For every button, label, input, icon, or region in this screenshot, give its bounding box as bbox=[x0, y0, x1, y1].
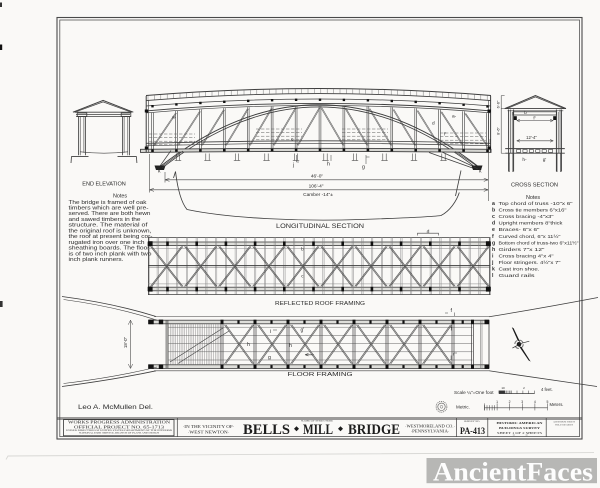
svg-text:BRIDGE: BRIDGE bbox=[348, 422, 400, 438]
svg-text:PA-413: PA-413 bbox=[460, 426, 485, 437]
svg-text:timbers which are well pre-: timbers which are well pre- bbox=[69, 206, 149, 212]
svg-text:Scale ¼"=One foot: Scale ¼"=One foot bbox=[454, 390, 494, 395]
svg-text:Meters.: Meters. bbox=[550, 402, 564, 407]
svg-text:the original roof is unknown,: the original roof is unknown, bbox=[69, 228, 152, 234]
svg-text:END ELEVATION: END ELEVATION bbox=[82, 182, 126, 188]
svg-text:Cross bracing 4"x 4": Cross bracing 4"x 4" bbox=[499, 253, 555, 258]
svg-text:2: 2 bbox=[509, 400, 511, 404]
svg-text:g: g bbox=[362, 165, 365, 171]
svg-text:BUILDINGS SURVEY: BUILDINGS SURVEY bbox=[499, 426, 541, 430]
svg-text:OFFICIAL PROJECT NO. 65-1713: OFFICIAL PROJECT NO. 65-1713 bbox=[74, 424, 164, 429]
svg-text:CROSS SECTION: CROSS SECTION bbox=[511, 183, 558, 189]
svg-text:is of two inch plank with two: is of two inch plank with two bbox=[69, 251, 152, 257]
svg-text:46'-0": 46'-0" bbox=[311, 174, 324, 180]
svg-text:REFLECTED ROOF FRAMING: REFLECTED ROOF FRAMING bbox=[275, 301, 366, 307]
svg-text:Curved chord, 6"x 11½": Curved chord, 6"x 11½" bbox=[499, 233, 561, 239]
svg-text:b: b bbox=[492, 208, 495, 214]
svg-text:1: 1 bbox=[496, 400, 498, 404]
svg-text:Metric.: Metric. bbox=[456, 405, 470, 410]
svg-text:f: f bbox=[492, 234, 494, 240]
svg-text:BELLS: BELLS bbox=[243, 422, 290, 438]
svg-text:Notes: Notes bbox=[526, 195, 540, 201]
svg-text:Braces- 6"x 6": Braces- 6"x 6" bbox=[499, 227, 540, 232]
svg-text:h: h bbox=[289, 343, 292, 349]
svg-text:Girders 7"x 12": Girders 7"x 12" bbox=[499, 247, 546, 252]
svg-text:SURVEY NO.: SURVEY NO. bbox=[464, 420, 480, 423]
svg-text:d: d bbox=[432, 121, 435, 127]
svg-text:c: c bbox=[492, 214, 495, 220]
svg-text:LONGITUDINAL SECTION: LONGITUDINAL SECTION bbox=[276, 223, 364, 230]
svg-text:6'-6": 6'-6" bbox=[496, 100, 501, 108]
svg-text:d: d bbox=[427, 230, 430, 236]
svg-text:Cross tie members 6"x16": Cross tie members 6"x16" bbox=[499, 208, 567, 213]
svg-text:h-: h- bbox=[522, 157, 527, 163]
svg-text:WORKS PROGRESS ADMINISTRATION: WORKS PROGRESS ADMINISTRATION bbox=[68, 420, 170, 424]
svg-text:structure. The material of: structure. The material of bbox=[69, 223, 149, 229]
svg-text:Notes: Notes bbox=[113, 194, 127, 200]
svg-text:rugated iron over one inch: rugated iron over one inch bbox=[69, 240, 145, 246]
svg-text:The bridge is framed of oak: The bridge is framed of oak bbox=[69, 200, 148, 206]
svg-text:·WESTMORELAND CO.·: ·WESTMORELAND CO.· bbox=[405, 424, 455, 429]
svg-text:served. There are both hewn: served. There are both hewn bbox=[69, 211, 151, 217]
svg-text:i: i bbox=[270, 329, 271, 335]
svg-text:Camber -14"±: Camber -14"± bbox=[303, 192, 333, 198]
svg-text:inch plank runners.: inch plank runners. bbox=[69, 257, 124, 263]
svg-text:SHEET 1 OF 2 SHEETS: SHEET 1 OF 2 SHEETS bbox=[497, 431, 542, 435]
svg-text:a: a bbox=[492, 201, 495, 207]
svg-text:MILL: MILL bbox=[303, 422, 333, 438]
svg-text:Upright members 8"thick: Upright members 8"thick bbox=[499, 221, 564, 226]
svg-text:10: 10 bbox=[501, 386, 505, 390]
svg-text:Cross bracing -4"x3": Cross bracing -4"x3" bbox=[499, 214, 554, 219]
svg-text:g': g' bbox=[543, 157, 547, 163]
svg-text:g': g' bbox=[301, 327, 305, 333]
svg-text:k: k bbox=[492, 267, 495, 273]
svg-text:d: d bbox=[492, 221, 495, 227]
svg-text:Leo A. McMullen Del.: Leo A. McMullen Del. bbox=[78, 404, 153, 411]
svg-text:f': f' bbox=[444, 132, 446, 138]
svg-text:4 feet.: 4 feet. bbox=[541, 387, 553, 392]
svg-text:18'-0": 18'-0" bbox=[123, 336, 128, 348]
svg-text:g: g bbox=[268, 355, 271, 361]
svg-text:12'-4": 12'-4" bbox=[526, 135, 537, 140]
svg-text:Floor stringers. 4½"x 7": Floor stringers. 4½"x 7" bbox=[499, 259, 561, 265]
svg-text:g: g bbox=[492, 240, 495, 246]
svg-text:Bottom chord of truss-two 6"x1: Bottom chord of truss-two 6"x11½" bbox=[499, 239, 579, 245]
svg-text:and sawed timbers in the: and sawed timbers in the bbox=[69, 217, 141, 223]
svg-text:8'-6": 8'-6" bbox=[496, 127, 501, 135]
svg-text:Guard rails: Guard rails bbox=[499, 273, 536, 278]
svg-text:HISTORIC AMERICAN: HISTORIC AMERICAN bbox=[497, 421, 544, 425]
svg-text:AncientFaces: AncientFaces bbox=[433, 458, 593, 487]
svg-text:the roof at present being cor-: the roof at present being cor- bbox=[69, 234, 153, 240]
svg-text:h: h bbox=[327, 162, 330, 168]
svg-text:5: 5 bbox=[546, 400, 548, 404]
svg-text:FLOOR FRAMING: FLOOR FRAMING bbox=[287, 372, 353, 378]
svg-text:·IN THE VICINITY OF·: ·IN THE VICINITY OF· bbox=[183, 424, 235, 429]
svg-text:a-: a- bbox=[172, 116, 177, 121]
svg-text:sheathing boards. The floor: sheathing boards. The floor bbox=[69, 246, 150, 252]
svg-text:h: h bbox=[247, 342, 250, 348]
svg-text:f': f' bbox=[533, 115, 535, 120]
svg-text:e: e bbox=[492, 227, 495, 233]
svg-text:h: h bbox=[492, 247, 495, 253]
svg-text:Top chord of truss -10"x 6": Top chord of truss -10"x 6" bbox=[499, 201, 574, 206]
svg-text:3: 3 bbox=[521, 400, 523, 404]
svg-text:106'-4": 106'-4" bbox=[309, 184, 324, 190]
svg-text:FIELD RECORDS: FIELD RECORDS bbox=[555, 425, 573, 427]
svg-text:·PENNSYLVANIA·: ·PENNSYLVANIA· bbox=[411, 429, 450, 434]
svg-text:4: 4 bbox=[534, 400, 536, 404]
svg-text:·WEST NEWTON·: ·WEST NEWTON· bbox=[188, 429, 230, 434]
svg-text:a-: a- bbox=[452, 115, 457, 120]
svg-text:Cast iron shoe.: Cast iron shoe. bbox=[499, 267, 540, 272]
svg-text:b: b bbox=[301, 247, 304, 253]
svg-text:l: l bbox=[490, 138, 491, 144]
